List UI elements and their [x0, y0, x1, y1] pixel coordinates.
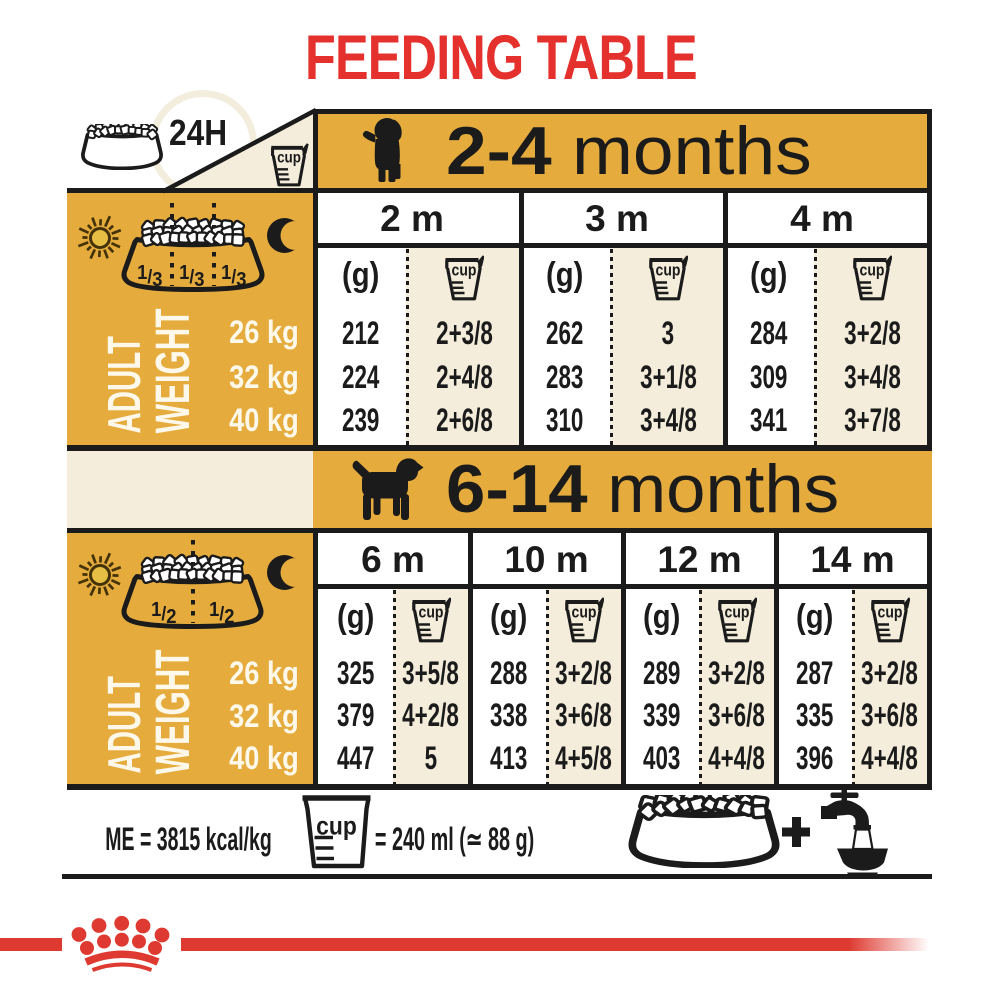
svg-text:cup: cup	[724, 603, 749, 621]
svg-text:cup: cup	[877, 603, 902, 621]
svg-text:cup: cup	[656, 261, 681, 279]
svg-text:cup: cup	[860, 261, 885, 279]
svg-text:cup: cup	[571, 603, 596, 621]
svg-text:cup: cup	[277, 150, 301, 167]
